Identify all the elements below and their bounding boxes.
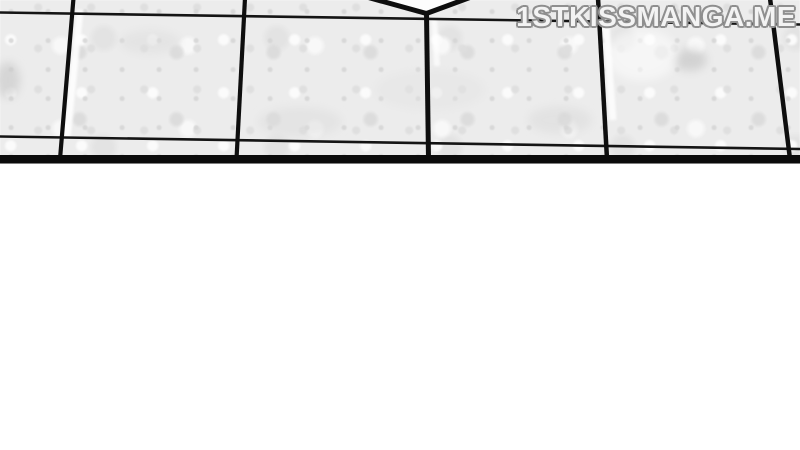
tile-highlight-patch <box>606 29 678 81</box>
vertical-joint-2 <box>237 0 246 159</box>
horizontal-joint-bottom <box>0 137 800 150</box>
panel-bottom-border <box>0 155 800 164</box>
manga-page: 1STKISSMANGA.ME <box>0 0 800 450</box>
vertical-joint-3 <box>427 13 429 159</box>
white-wedge-shape <box>363 0 474 14</box>
panel-gutter <box>0 164 800 450</box>
site-watermark: 1STKISSMANGA.ME <box>516 1 796 33</box>
